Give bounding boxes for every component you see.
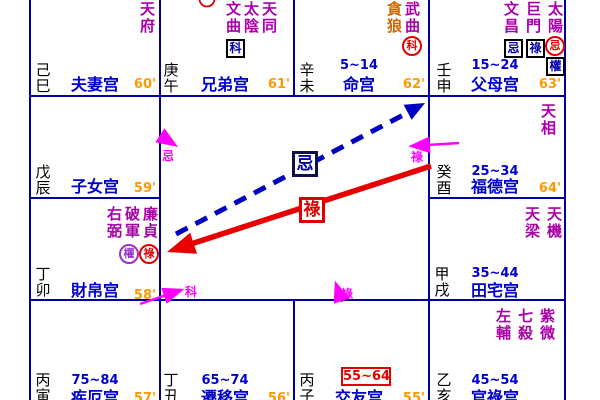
stem-branch-label: 庚午 (163, 62, 179, 94)
transform-box: 忌 (504, 39, 523, 58)
star-name: 右弼 (106, 206, 123, 240)
stem-branch-label: 丙寅 (35, 372, 51, 400)
ziwei-doushu-chart: 天府 己巳 夫妻宫 60' 天同 太陰 文曲 科 庚午 兄弟宫 61' 武曲 貪… (0, 0, 600, 400)
age-range-label: 45~54 (454, 373, 536, 388)
age-range-label: 75~84 (55, 373, 135, 388)
stem-branch-label: 己巳 (35, 62, 51, 94)
star-name: 文昌 (503, 1, 520, 35)
palace-name: 官祿宫 (454, 389, 536, 400)
stem-branch-label: 丁丑 (163, 372, 179, 400)
star-name: 文曲 (225, 1, 242, 35)
stem-branch-label: 戊辰 (35, 164, 51, 196)
self-transform-arrow-icon (161, 136, 175, 145)
star-name: 武曲 (404, 1, 421, 35)
self-transform-label: 忌 (162, 150, 174, 163)
stem-branch-label: 辛未 (299, 62, 315, 94)
star-name: 天相 (540, 103, 557, 137)
minutes-label: 59' (120, 182, 156, 196)
minutes-label: 62' (389, 78, 425, 92)
minutes-label: 57' (120, 392, 156, 400)
transform-box: 祿 (526, 39, 545, 58)
transform-circle: 祿 (139, 244, 159, 264)
lu-flying-label: 祿 (299, 197, 325, 223)
self-transform-label: 科 (185, 286, 197, 299)
stem-branch-label: 丁卯 (35, 266, 51, 298)
palace-name: 兄弟宫 (185, 76, 265, 93)
lu-arrowhead-icon (167, 233, 197, 254)
palace-name: 福德宫 (454, 178, 536, 195)
star-name: 天機 (546, 206, 563, 240)
age-range-highlight: 55~64 (341, 367, 391, 386)
palace-name: 命宫 (319, 76, 399, 93)
transform-circle: 科 (402, 36, 422, 56)
age-range-label: 35~44 (454, 266, 536, 281)
stem-branch-label: 丙子 (299, 372, 315, 400)
star-name: 紫微 (539, 308, 556, 342)
star-name: 七殺 (517, 308, 534, 342)
star-name: 太陽 (547, 1, 564, 35)
transform-box: 權 (546, 57, 565, 76)
minutes-label: 56' (254, 392, 290, 400)
minutes-label: 61' (254, 78, 290, 92)
minutes-label: 60' (120, 78, 156, 92)
cutoff-red-circle (200, 0, 215, 7)
transform-box: 科 (226, 39, 245, 58)
star-name: 廉貞 (142, 206, 159, 240)
ji-arrowhead-icon (404, 103, 425, 120)
palace-name: 田宅宫 (454, 282, 536, 299)
stem-branch-label: 乙亥 (436, 372, 452, 400)
self-transform-label: 祿 (341, 288, 353, 301)
star-name: 太陰 (243, 1, 260, 35)
self-transform-label: 祿 (411, 151, 423, 164)
star-name: 天府 (139, 1, 156, 35)
minutes-label: 64' (525, 182, 561, 196)
transform-circle: 忌 (545, 36, 565, 56)
stem-branch-label: 壬申 (436, 62, 452, 94)
palace-name: 遷移宫 (185, 389, 265, 400)
palace-name: 父母宫 (454, 76, 536, 93)
age-range-label: 65~74 (185, 373, 265, 388)
ji-flying-label: 忌 (292, 151, 318, 177)
star-name: 貪狼 (386, 1, 403, 35)
star-name: 天梁 (524, 206, 541, 240)
minutes-label: 58' (120, 289, 156, 303)
star-name: 破軍 (124, 206, 141, 240)
self-transform-arrow-icon (412, 143, 459, 146)
stem-branch-label: 癸酉 (436, 164, 452, 196)
minutes-label: 63' (525, 78, 561, 92)
minutes-label: 55' (389, 392, 425, 400)
transform-circle: 權 (119, 244, 139, 264)
star-name: 天同 (261, 1, 278, 35)
star-name: 巨門 (525, 1, 542, 35)
palace-name: 交友宫 (319, 389, 399, 400)
age-range-label: 5~14 (319, 58, 399, 73)
stem-branch-label: 甲戌 (434, 266, 450, 298)
star-name: 左輔 (495, 308, 512, 342)
age-range-label: 15~24 (454, 58, 536, 73)
